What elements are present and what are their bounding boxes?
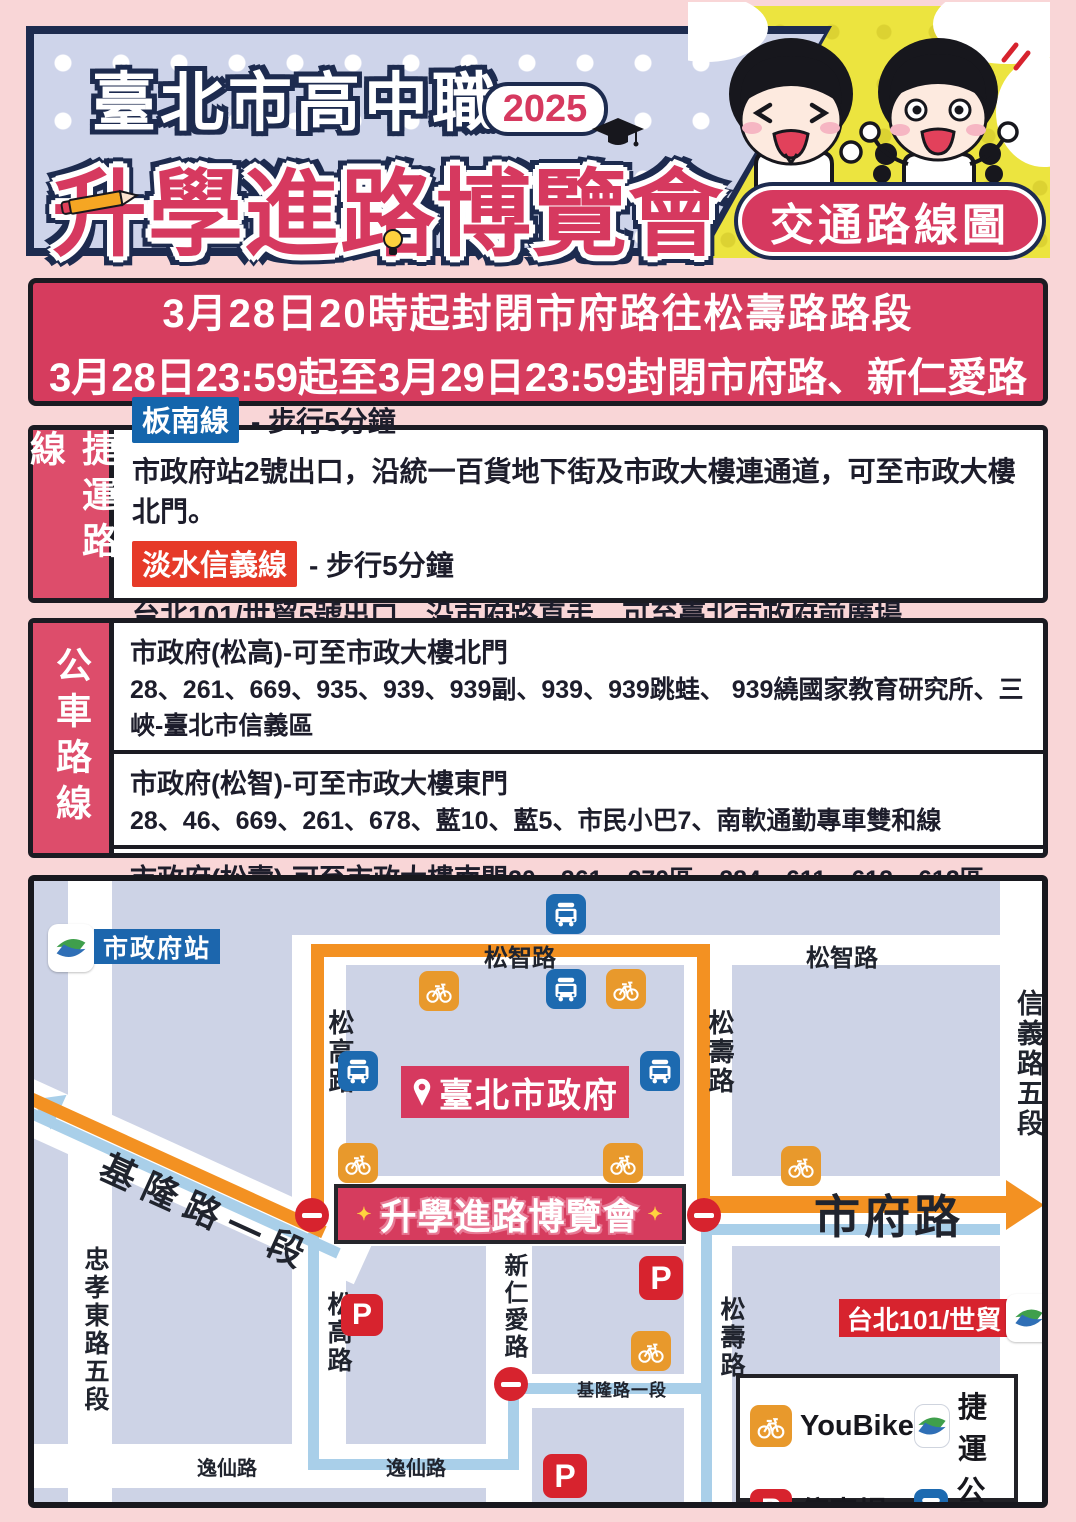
mrt-logo-icon: [48, 924, 94, 972]
city-hall-badge: 臺北市政府: [401, 1066, 629, 1118]
bus-stop-title: 市政府(松高)-可至市政大樓北門: [130, 631, 1027, 670]
notice-line1: 3月28日20時起封閉市府路往松壽路路段: [162, 281, 913, 339]
legend-bus: 公車: [914, 1468, 1004, 1508]
expo-banner: ✦ 升學進路博覽會 ✦: [334, 1184, 686, 1244]
parking-icon: P: [341, 1294, 383, 1336]
parking-icon: P: [750, 1489, 792, 1508]
bus-icon: [640, 1051, 680, 1091]
bus-section-content: 市政府(松高)-可至市政大樓北門 28、261、669、935、939、939副…: [114, 623, 1043, 853]
road-label-songzhi-east: 松智路: [806, 938, 878, 973]
no-entry-icon: [687, 1198, 721, 1232]
road-label-zhongxiao: 忠孝東路五段: [77, 1246, 113, 1414]
bus-icon: [338, 1051, 378, 1091]
bus-icon: [546, 969, 586, 1009]
road-label-songshou-upper: 松壽路: [702, 1009, 739, 1096]
bus-section-label: 公車路線: [33, 623, 114, 853]
bus-stop-title: 市政府(松智)-可至市政大樓東門: [130, 762, 1027, 801]
bus-stop-row: 市政府(松高)-可至市政大樓北門 28、261、669、935、939、939副…: [114, 623, 1043, 750]
bus-stop-routes: 28、46、669、261、678、藍10、藍5、市民小巴7、南軟通勤專車雙和線: [130, 801, 1027, 837]
parking-icon: P: [543, 1454, 587, 1498]
bannan-line-badge: 板南線: [132, 397, 239, 443]
youbike-icon: [419, 971, 459, 1011]
sparkle-icon: ✦: [356, 1204, 372, 1225]
legend-bus-label: 公車: [956, 1468, 1004, 1508]
lightbulb-icon: [380, 228, 406, 263]
road-label-shifu: 市府路: [814, 1181, 964, 1247]
mrt-section-content: 板南線 - 步行5分鐘 市政府站2號出口，沿統一百貨地下街及市政大樓連通道，可至…: [114, 430, 1043, 598]
no-entry-icon: [295, 1198, 329, 1232]
mrt-routes-section: 捷運路線 板南線 - 步行5分鐘 市政府站2號出口，沿統一百貨地下街及市政大樓連…: [28, 425, 1048, 603]
youbike-icon: [750, 1405, 792, 1447]
legend-parking: P 停車場: [750, 1489, 914, 1508]
bus-routes-section: 公車路線 市政府(松高)-可至市政大樓北門 28、261、669、935、939…: [28, 618, 1048, 858]
notice-line2: 3月28日23:59起至3月29日23:59封閉市府路、新仁愛路: [49, 345, 1027, 403]
legend-youbike: YouBike: [750, 1405, 914, 1447]
legend-youbike-label: YouBike: [800, 1410, 914, 1443]
traffic-map-badge: 交通路線圖: [742, 190, 1038, 252]
youbike-icon: [606, 969, 646, 1009]
bus-stop-row: 市政府(松智)-可至市政大樓東門 28、46、669、261、678、藍10、藍…: [114, 750, 1043, 845]
bus-icon: [546, 894, 586, 934]
location-pin-icon: [411, 1077, 433, 1107]
expo-banner-label: 升學進路博覽會: [380, 1188, 639, 1240]
city-hall-station-badge: 市政府站: [94, 929, 220, 964]
main-route-arrow: [1006, 1180, 1044, 1230]
city-hall-badge-label: 臺北市政府: [439, 1068, 619, 1117]
mrt-logo-icon: [1006, 1294, 1048, 1342]
youbike-icon: [631, 1331, 671, 1371]
page-title-line1: 臺北市高中職: [92, 52, 500, 144]
graduation-cap-icon: [590, 116, 646, 155]
students-illustration: [688, 2, 1050, 214]
mrt-logo-icon: [914, 1404, 950, 1448]
road-label-yixian-east: 逸仙路: [386, 1452, 446, 1481]
bannan-line-description: 市政府站2號出口，沿統一百貨地下街及市政大樓連通道，可至市政大樓北門。: [132, 450, 1025, 530]
youbike-icon: [781, 1146, 821, 1186]
parking-icon: P: [639, 1256, 683, 1300]
road-closure-notice: 3月28日20時起封閉市府路往松壽路路段 3月28日23:59起至3月29日23…: [28, 278, 1048, 406]
legend-parking-label: 停車場: [800, 1489, 887, 1508]
map-legend: YouBike 捷運 P 停車場 公車: [736, 1374, 1018, 1502]
no-entry-icon: [494, 1367, 528, 1401]
road-label-songshou-lower: 松壽路: [713, 1296, 749, 1380]
bus-stop-routes: 28、261、669、935、939、939副、939、939跳蛙、 939繞國…: [130, 670, 1027, 742]
youbike-icon: [338, 1143, 378, 1183]
road-label-xinyi: 信義路五段: [1009, 989, 1048, 1139]
bannan-walk-time: - 步行5分鐘: [251, 400, 396, 440]
detour-route-songgao: [308, 1233, 319, 1470]
taipei-101-badge: 台北101/世貿: [839, 1299, 1009, 1337]
legend-mrt: 捷運: [914, 1384, 1004, 1468]
tamsui-xinyi-walk-time: - 步行5分鐘: [309, 544, 454, 584]
road-label-keelung-lower: 基隆路一段: [577, 1376, 667, 1401]
road-label-songzhi-west: 松智路: [484, 938, 556, 973]
mrt-section-label: 捷運路線: [33, 430, 114, 598]
detour-route-songshou: [701, 1224, 712, 1508]
sparkle-icon: ✦: [648, 1204, 664, 1225]
road-label-xinren: 新仁愛路: [496, 1253, 531, 1361]
youbike-icon: [603, 1143, 643, 1183]
legend-mrt-label: 捷運: [958, 1384, 1004, 1468]
traffic-route-map: 市政府站 松智路 松智路 信義路五段 忠孝東路五段 松高路 松壽路 松高路 松壽…: [28, 875, 1048, 1508]
road-label-yixian-west: 逸仙路: [197, 1452, 257, 1481]
tamsui-xinyi-line-badge: 淡水信義線: [132, 541, 297, 587]
bus-icon: [914, 1489, 948, 1508]
